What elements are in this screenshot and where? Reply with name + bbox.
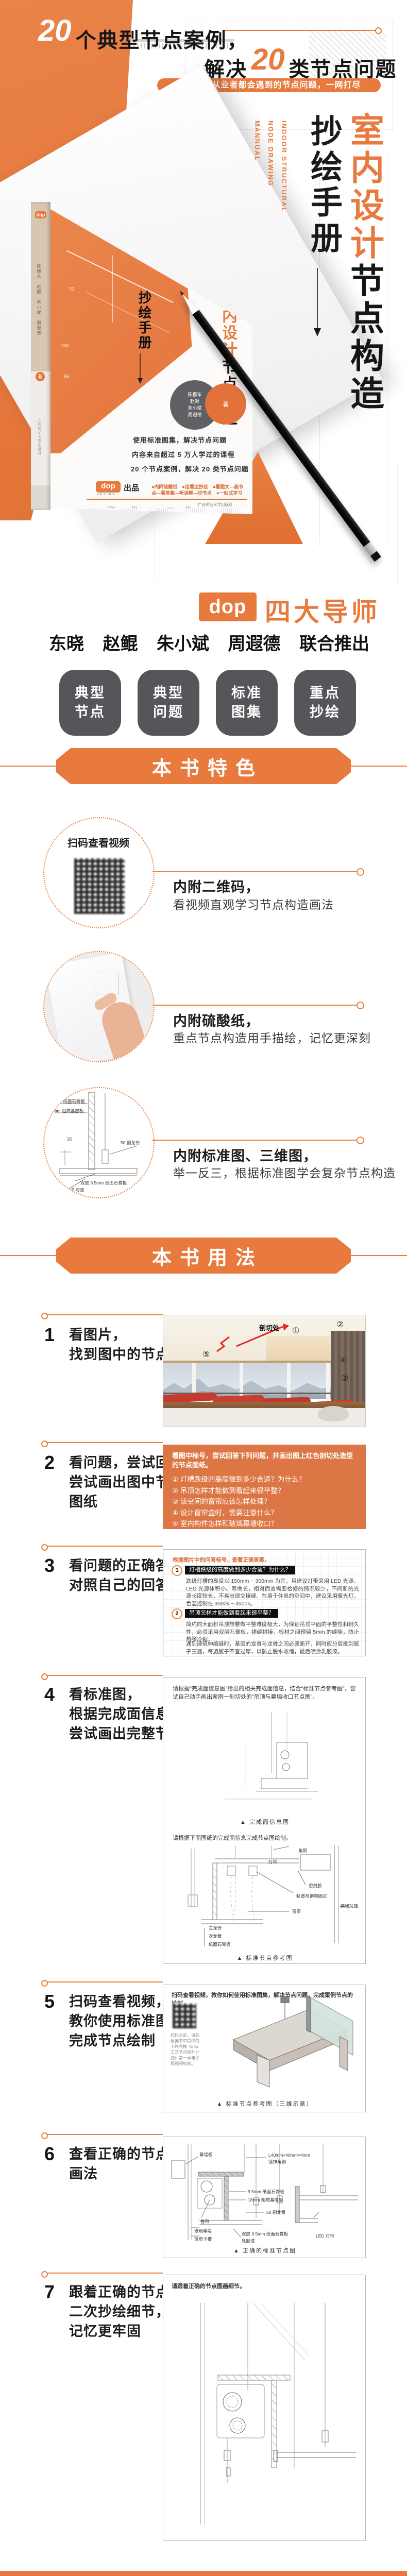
node-label: 窗帘 bbox=[292, 1908, 301, 1914]
answer1-circle: 1 bbox=[172, 1565, 182, 1576]
feature2-connector bbox=[152, 1005, 359, 1006]
answer1-text: 跌级灯槽的高度以 150mm ~ 300mm 为宜，且建议灯带采用 LED 光源… bbox=[186, 1578, 359, 1607]
feature3-connector bbox=[152, 1140, 359, 1141]
step5-text: 扫码查看视频， bbox=[69, 1992, 170, 2011]
step1-photo: 剖切处 ① ② ③ ④ ⑤ bbox=[163, 1315, 366, 1427]
node-label: 密封胶 bbox=[309, 1883, 322, 1889]
promo-page: 20 个典型节点案例， 解决 20 类节点问题 室内设计从业者都会遇到的节点问题… bbox=[0, 0, 407, 2576]
question-item: ⑤ 室内构件怎样和玻璃幕墙收口？ bbox=[172, 1518, 357, 1530]
hero-title-black: 节点构造 bbox=[346, 263, 384, 413]
spine-authors: 陈郡东 赵鲲 朱小斌 周遐德 bbox=[36, 264, 42, 336]
mentor-names-row: 东晓 赵鲲 朱小斌 周遐德 联合推出 bbox=[49, 630, 369, 655]
step1-rule bbox=[47, 1314, 163, 1315]
feature3-label: 9.5mm 纸面石膏板 bbox=[48, 1098, 85, 1105]
answer2-text-a: 简约的大面积吊顶想要做平整难度极大，为保证吊顶平面的平整性和耐久性，必须采用双层… bbox=[186, 1621, 359, 1643]
node-label: 50 副龙骨 bbox=[266, 2209, 285, 2215]
banner-features: 本书特色 bbox=[56, 748, 351, 784]
dop-logo: dop bbox=[199, 592, 257, 621]
node-label: 9.5mm 纸面石膏板 bbox=[248, 2189, 284, 2195]
hero-en-title: INDOOR STRUCTURAL NODE DRAWING MANNUAL bbox=[250, 121, 291, 316]
venn-author: 赵鲲 bbox=[188, 398, 201, 405]
feature1-title: 内附二维码， bbox=[173, 876, 260, 896]
node-label: 窗帘卡槽 bbox=[194, 2236, 212, 2242]
step3-text: 对照自己的回答 bbox=[69, 1575, 170, 1595]
mentor-name: 周遐德 bbox=[228, 630, 281, 655]
footer: GUANGXI NORMAL UNIVERSITY PRESS 广西师范大学出版… bbox=[0, 2571, 407, 2576]
cover-title-sub: 抄绘手册 bbox=[135, 291, 154, 350]
standard-node-drawing bbox=[171, 1845, 359, 1951]
step3-dot-icon bbox=[41, 1544, 48, 1551]
feature1-ring-icon bbox=[357, 868, 364, 876]
step6-text: 画法 bbox=[69, 2164, 98, 2183]
svg-text:30: 30 bbox=[67, 1137, 72, 1142]
pencil-tip-icon bbox=[179, 290, 184, 296]
question-item: ① 灯槽跌级的高度做到多少合适？为什么？ bbox=[172, 1474, 357, 1485]
banner-usage: 本书用法 bbox=[56, 1238, 351, 1274]
tile-line: 节点 bbox=[75, 703, 106, 722]
headline-rule bbox=[225, 30, 377, 31]
headline-rule-dot-icon bbox=[375, 27, 382, 34]
mentors-title: 四大导师 bbox=[265, 591, 380, 629]
tile-line: 图集 bbox=[231, 703, 262, 722]
title-arrow-down-icon bbox=[311, 268, 324, 337]
hero-en-line: INDOOR STRUCTURAL bbox=[277, 121, 291, 316]
question-item: ② 吊顶怎样才能做到看起来很平整？ bbox=[172, 1485, 357, 1497]
step4-rule bbox=[47, 1675, 163, 1676]
step2-text: 图纸 bbox=[69, 1492, 98, 1512]
step3-note: 根据图片中的问答标号，查看正确答案。 bbox=[173, 1556, 270, 1564]
step4-text: 看标准图， bbox=[69, 1685, 141, 1704]
spine-author: 朱小斌 bbox=[37, 300, 41, 315]
mentor-name: 朱小斌 bbox=[157, 630, 209, 655]
step1-text: 找到图中的节点 bbox=[69, 1345, 170, 1364]
feature3-label: 50 副龙骨 bbox=[121, 1140, 140, 1146]
hero-en-line: MANNUAL bbox=[250, 121, 264, 316]
cover-bullet: 内容来自超过 5 万人学过的课程 bbox=[132, 449, 234, 459]
node-label: 角钢 bbox=[298, 1848, 307, 1854]
photo-marker: ① bbox=[292, 1326, 299, 1336]
step6-number: 6 bbox=[44, 2143, 55, 2165]
feature2-circle bbox=[43, 951, 155, 1062]
step4-intro2: 请根据下面图纸的完成面信息完成节点图绘制。 bbox=[173, 1834, 357, 1842]
mentors-suffix: 联合推出 bbox=[299, 630, 369, 655]
feature3-title: 内附标准图、三维图， bbox=[173, 1145, 317, 1165]
step7-rule bbox=[47, 2273, 163, 2274]
cover-feature-line: ●内附硫酸纸 ●边看边抄绘 ●看图文—画节点—看答案—听讲解—抄节点 ●一站式学… bbox=[151, 484, 247, 496]
headline-2: 解决 20 类节点问题 bbox=[204, 47, 397, 82]
headline-2-pre: 解决 bbox=[204, 47, 247, 82]
step6-dot-icon bbox=[41, 2132, 48, 2139]
step5-number: 5 bbox=[44, 1991, 55, 2012]
node-label: 灯带 bbox=[268, 1859, 277, 1865]
feature1-connector bbox=[152, 871, 359, 872]
cover-brand-suffix: 出品 bbox=[124, 482, 139, 493]
step5-qr-note: 扫码之前，请先根据书中提供的卡片兑换《dop 工艺节点提升计划》第一季电子版视频… bbox=[171, 2032, 199, 2066]
tile-key-copying: 重点抄绘 bbox=[294, 670, 356, 736]
step4-caption2: ▲ 标准节点参考图 bbox=[163, 1954, 366, 1962]
hero-title-col1: 室内设计节点构造 bbox=[340, 112, 389, 413]
hero-title-orange: 室内设计 bbox=[346, 112, 384, 263]
step7-panel: 请跟着正确的节点图画细节。 bbox=[163, 2275, 366, 2541]
headline-2-text: 类节点问题 bbox=[289, 47, 397, 82]
cover-rule bbox=[87, 499, 247, 500]
step4-number: 4 bbox=[44, 1684, 55, 1705]
hero-title-col2: 抄绘手册 bbox=[300, 114, 346, 257]
step4-dot-icon bbox=[41, 1673, 48, 1680]
cover-bullet: 使用标准图集，解决节点问题 bbox=[133, 435, 227, 445]
step4-intro1: 请根据“完成面信息图”给出的相关完成面信息，结合“标准节点参考图”，尝试自己动手… bbox=[173, 1685, 357, 1701]
feature1-qr-code bbox=[72, 856, 127, 916]
node-label: 乳胶漆 bbox=[242, 2238, 255, 2244]
cover-arrow-down-icon bbox=[135, 353, 145, 384]
venn-author: 周遐德 bbox=[188, 412, 201, 418]
step4-panel: 请根据“完成面信息图”给出的相关完成面信息，结合“标准节点参考图”，尝试自己动手… bbox=[163, 1677, 366, 1964]
node-label: 纸面石膏板 bbox=[209, 1941, 231, 1947]
photo-marker: ⑤ bbox=[202, 1349, 210, 1360]
venn-author: 朱小斌 bbox=[188, 405, 201, 412]
node-label: 双层 9.5mm 纸面石膏板 bbox=[242, 2231, 288, 2237]
node-label: 镀锌角钢 bbox=[268, 2159, 286, 2165]
step7-dot-icon bbox=[41, 2271, 48, 2278]
step5-panel: 扫码查看视频，教你如何使用标准图集，解决节点问题，完成案例节点的绘制。 扫码之前… bbox=[163, 1985, 366, 2112]
step5-rule bbox=[47, 1981, 163, 1982]
feature3-text: 举一反三，根据标准图学会复杂节点构造 bbox=[173, 1163, 396, 1181]
cover-dop-logo: dop bbox=[96, 481, 121, 493]
node-label: 玻璃幕墙 bbox=[194, 2228, 212, 2234]
tile-line: 问题 bbox=[153, 703, 184, 722]
step6-rule bbox=[47, 2134, 163, 2135]
answer2-circle: 2 bbox=[172, 1608, 182, 1619]
tile-line: 抄绘 bbox=[310, 703, 341, 722]
tile-typical-nodes: 典型节点 bbox=[59, 670, 121, 736]
mentor-name: 东晓 bbox=[49, 630, 84, 655]
question-item: ④ 设计窗帘盒时，需要注意什么？ bbox=[172, 1507, 357, 1519]
step3-answer-panel: 根据图片中的问答标号，查看正确答案。 1 灯槽跌级的高度做到多少合适？为什么？ … bbox=[163, 1549, 366, 1656]
hero-en-line: NODE DRAWING bbox=[264, 121, 277, 316]
step1-dot-icon bbox=[41, 1313, 48, 1319]
book-spine: dop 陈郡东 赵鲲 朱小斌 周遐德 著 广西师范大学出版社 bbox=[31, 202, 50, 510]
step2-dot-icon bbox=[41, 1440, 48, 1447]
photo-mullion bbox=[287, 1363, 291, 1403]
cover-venn-mark-circle: 著 bbox=[205, 383, 246, 425]
step2-panel-intro: 看图中标号，尝试回答下列问题，并画出图上红色剖切处造型的节点图纸。 bbox=[172, 1451, 357, 1470]
step3-rule bbox=[47, 1546, 163, 1547]
photo-pillow bbox=[318, 1406, 349, 1421]
cover-dop-sub: DESIGN bbox=[97, 493, 116, 496]
tile-line: 标准 bbox=[231, 684, 262, 703]
step5-text: 完成节点绘制 bbox=[69, 2031, 156, 2050]
venn-author-list: 陈郡东 赵鲲 朱小斌 周遐德 bbox=[188, 392, 201, 418]
feature3-label: 乳胶漆 bbox=[71, 1187, 84, 1193]
node-label: 幕墙板 bbox=[199, 2151, 213, 2158]
photo-cut-label: 剖切处 bbox=[259, 1323, 279, 1332]
spine-dop-logo: dop bbox=[35, 211, 46, 218]
feature2-paper-drawing bbox=[94, 973, 118, 994]
step3-number: 3 bbox=[44, 1555, 55, 1577]
feature3-circle: 30 9.5mm 纸面石膏板 18mm 阻燃基层板 50 副龙骨 双层 9.5m… bbox=[43, 1087, 155, 1198]
tile-line: 典型 bbox=[153, 684, 184, 703]
step5-qr-code bbox=[172, 2003, 197, 2029]
step7-intro: 请跟着正确的节点图画细节。 bbox=[172, 2282, 357, 2291]
headline-2-number: 20 bbox=[251, 49, 285, 70]
node-label: 主龙骨 bbox=[209, 1925, 222, 1931]
spine-author: 周遐德 bbox=[37, 320, 41, 336]
step4-caption1: ▲ 完成面信息图 bbox=[163, 1818, 366, 1826]
node-label: 18mm 阻燃基层板 bbox=[248, 2197, 283, 2203]
spine-author-mark: 著 bbox=[36, 372, 45, 381]
feature2-title: 内附硫酸纸， bbox=[173, 1010, 260, 1030]
node-label: 轨道与钢架固定 bbox=[296, 1893, 327, 1899]
step5-dot-icon bbox=[41, 1980, 48, 1987]
step2-question: ① 灯槽跌级的高度做到多少合适？为什么？ ② 吊顶怎样才能做到看起来很平整？ ③… bbox=[172, 1474, 357, 1530]
photo-mullion bbox=[326, 1363, 330, 1403]
question-item: ③ 该空间的窗帘应该怎样处理？ bbox=[172, 1496, 357, 1507]
node-label: LED 灯带 bbox=[316, 2233, 334, 2239]
axon-3d-drawing bbox=[213, 1993, 362, 2096]
spine-publisher: 广西师范大学出版社 bbox=[37, 418, 42, 455]
step1-number: 1 bbox=[44, 1324, 55, 1346]
cover-publisher: 广西师范大学出版社 bbox=[198, 502, 233, 507]
feature1-text: 看视频直观学习节点构造画法 bbox=[173, 895, 334, 912]
answer1-question: 灯槽跌级的高度做到多少合适？为什么？ bbox=[185, 1566, 295, 1574]
tile-standard-atlas: 标准图集 bbox=[216, 670, 278, 736]
node-label: 卷帘 bbox=[200, 2218, 209, 2225]
feature2-ring-icon bbox=[357, 1002, 364, 1009]
step2-rule bbox=[47, 1442, 163, 1443]
spine-author: 赵鲲 bbox=[37, 284, 41, 295]
cover-en-title: INDOOR STRUCTURAL NODE DRAWING MANNUAL bbox=[127, 291, 130, 427]
feature3-label: 双层 9.5mm 纸面石膏板 bbox=[80, 1180, 127, 1186]
tile-typical-problems: 典型问题 bbox=[138, 670, 199, 736]
mentor-name: 赵鲲 bbox=[103, 630, 138, 655]
step5-caption: ▲ 标准节点参考图（三维示意） bbox=[163, 2099, 366, 2108]
answer2-question: 吊顶怎样才能做到看起来很平整？ bbox=[185, 1609, 278, 1618]
spine-author: 陈郡东 bbox=[37, 264, 41, 279]
venn-mark: 著 bbox=[223, 400, 229, 409]
photo-cut-arrow-icon bbox=[207, 1319, 299, 1355]
venn-author: 陈郡东 bbox=[188, 392, 201, 398]
feature3-label: 18mm 阻燃基层板 bbox=[48, 1108, 83, 1114]
finish-info-drawing bbox=[194, 1711, 338, 1809]
step1-text: 看图片， bbox=[69, 1325, 127, 1345]
cover-bullet: 20 个节点案例，解决 20 类节点问题 bbox=[131, 464, 249, 473]
photo-marker: ④ bbox=[340, 1355, 347, 1366]
photo-marker: ③ bbox=[341, 1373, 348, 1383]
tile-line: 典型 bbox=[75, 684, 106, 703]
copy-practice-drawing bbox=[171, 2298, 359, 2530]
step7-text: 记忆更牢固 bbox=[69, 2321, 141, 2341]
feature3-ring-icon bbox=[357, 1137, 364, 1144]
feature2-text: 重点节点构造用手描绘，记忆更深刻 bbox=[173, 1028, 371, 1046]
feature1-circle-note: 扫码查看视频 bbox=[49, 835, 147, 850]
step7-number: 7 bbox=[44, 2281, 55, 2303]
step2-question-panel: 看图中标号，尝试回答下列问题，并画出图上红色剖切处造型的节点图纸。 ① 灯槽跌级… bbox=[163, 1445, 366, 1529]
step2-number: 2 bbox=[44, 1452, 55, 1473]
node-label: 次龙骨 bbox=[209, 1933, 222, 1939]
headline-1-number: 20 bbox=[38, 21, 72, 41]
step6-caption: ▲ 正确的标准节点图 bbox=[163, 2246, 366, 2255]
photo-marker: ② bbox=[336, 1319, 344, 1330]
step6-panel: 幕墙板 L40mm×40mm×4mm 镀锌角钢 9.5mm 纸面石膏板 18mm… bbox=[163, 2137, 366, 2258]
tile-line: 重点 bbox=[310, 684, 341, 703]
answer2-text-b: 遇到建筑伸缩缝时，基层的龙骨与龙骨之间必须断开，同时应分层批刮腻子三遍，每遍腻子… bbox=[186, 1640, 359, 1655]
node-label: 幕墙玻璃 bbox=[341, 1903, 358, 1909]
step7-text: 二次抄绘细节， bbox=[69, 2302, 170, 2321]
node-label: L40mm×40mm×4mm bbox=[268, 2153, 310, 2158]
